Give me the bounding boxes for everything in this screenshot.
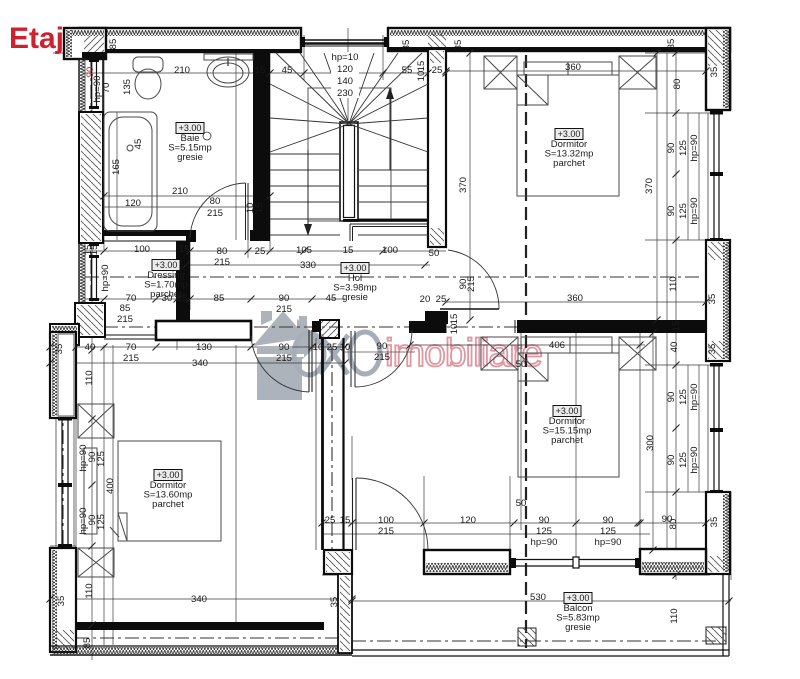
svg-text:210: 210: [172, 186, 188, 197]
svg-text:35: 35: [707, 344, 718, 355]
svg-text:hp=90: hp=90: [689, 135, 700, 162]
svg-text:125: 125: [536, 526, 552, 537]
svg-text:370: 370: [458, 177, 469, 193]
svg-text:40: 40: [669, 342, 680, 353]
svg-text:90: 90: [603, 515, 614, 526]
svg-text:10: 10: [449, 324, 460, 335]
svg-text:45: 45: [282, 65, 293, 76]
svg-text:25: 25: [327, 342, 338, 353]
svg-text:125: 125: [678, 140, 689, 156]
svg-text:hp=90: hp=90: [595, 537, 622, 548]
svg-text:+3.00: +3.00: [558, 129, 581, 139]
svg-text:50: 50: [429, 248, 440, 259]
svg-text:125: 125: [96, 451, 107, 467]
svg-text:+3.00: +3.00: [344, 263, 367, 273]
svg-text:70: 70: [101, 83, 112, 94]
svg-text:Etaj: Etaj: [9, 22, 64, 55]
svg-text:90: 90: [377, 341, 388, 352]
svg-text:hp=90: hp=90: [689, 384, 700, 411]
svg-text:35: 35: [709, 517, 720, 528]
svg-text:120: 120: [337, 64, 353, 75]
svg-text:15: 15: [254, 203, 265, 214]
svg-text:300: 300: [645, 435, 656, 451]
svg-text:90: 90: [279, 293, 290, 304]
svg-text:90: 90: [666, 206, 677, 217]
svg-text:10: 10: [313, 342, 324, 353]
svg-text:35: 35: [329, 597, 340, 608]
svg-text:90: 90: [666, 392, 677, 403]
svg-text:85: 85: [214, 293, 225, 304]
svg-text:35: 35: [709, 67, 720, 78]
svg-text:+3.00: +3.00: [157, 470, 180, 480]
svg-text:15: 15: [340, 515, 351, 526]
svg-text:80: 80: [672, 79, 683, 90]
svg-text:110: 110: [84, 370, 95, 385]
svg-text:110: 110: [669, 608, 680, 623]
svg-text:215: 215: [378, 526, 394, 537]
svg-text:125: 125: [96, 514, 107, 530]
svg-text:25: 25: [432, 65, 443, 76]
svg-text:45: 45: [133, 139, 144, 150]
svg-text:+3.00: +3.00: [155, 260, 178, 270]
svg-text:215: 215: [276, 304, 292, 315]
svg-text:215: 215: [374, 352, 390, 363]
svg-text:360: 360: [567, 293, 583, 304]
svg-text:340: 340: [191, 594, 207, 605]
svg-text:215: 215: [207, 208, 223, 219]
svg-text:120: 120: [125, 198, 141, 209]
svg-text:20: 20: [420, 294, 431, 305]
svg-text:360: 360: [565, 62, 581, 73]
svg-text:hp=10: hp=10: [332, 52, 359, 63]
svg-text:110: 110: [84, 583, 95, 598]
svg-text:406: 406: [549, 340, 565, 351]
svg-text:530: 530: [530, 592, 546, 603]
svg-text:35: 35: [56, 596, 67, 607]
svg-text:15: 15: [416, 61, 427, 72]
svg-text:125: 125: [600, 526, 616, 537]
svg-text:30: 30: [162, 293, 173, 304]
svg-text:135: 135: [122, 79, 133, 95]
svg-text:80: 80: [217, 246, 228, 257]
svg-text:80: 80: [210, 196, 221, 207]
svg-text:90: 90: [666, 143, 677, 154]
svg-text:15: 15: [89, 245, 100, 256]
svg-text:15: 15: [671, 321, 682, 332]
svg-text:120: 120: [460, 515, 476, 526]
svg-text:215: 215: [123, 353, 139, 364]
svg-text:gresie: gresie: [565, 622, 591, 633]
svg-text:90: 90: [666, 455, 677, 466]
svg-text:25: 25: [255, 246, 266, 257]
svg-text:35: 35: [666, 39, 677, 50]
svg-text:35: 35: [453, 40, 464, 51]
svg-text:+3.00: +3.00: [179, 123, 202, 133]
svg-text:parchet: parchet: [553, 158, 585, 169]
svg-text:400: 400: [105, 478, 116, 494]
svg-text:gresie: gresie: [342, 292, 368, 303]
svg-text:45: 45: [326, 293, 337, 304]
svg-text:100: 100: [134, 244, 150, 255]
svg-text:230: 230: [337, 88, 353, 99]
svg-text:125: 125: [678, 452, 689, 468]
svg-text:hp=90: hp=90: [531, 537, 558, 548]
svg-text:110: 110: [668, 276, 679, 291]
svg-text:+3.00: +3.00: [567, 593, 590, 603]
svg-text:15: 15: [449, 314, 460, 325]
svg-text:370: 370: [644, 178, 655, 194]
svg-text:140: 140: [337, 76, 353, 87]
svg-text:70: 70: [126, 342, 137, 353]
svg-text:hp=90: hp=90: [689, 447, 700, 474]
svg-text:100: 100: [378, 515, 394, 526]
svg-text:35: 35: [54, 344, 65, 355]
svg-text:+3.00: +3.00: [556, 406, 579, 416]
svg-text:90: 90: [279, 342, 290, 353]
svg-text:85: 85: [108, 39, 119, 50]
svg-text:210: 210: [174, 65, 190, 76]
svg-text:80: 80: [668, 519, 679, 530]
svg-text:85: 85: [120, 303, 131, 314]
svg-text:215: 215: [276, 353, 292, 364]
svg-text:215: 215: [214, 257, 230, 268]
svg-text:90: 90: [539, 515, 550, 526]
svg-text:50: 50: [516, 359, 527, 370]
svg-text:100: 100: [382, 245, 398, 256]
svg-text:parchet: parchet: [152, 499, 184, 510]
svg-text:50: 50: [516, 498, 527, 509]
svg-text:15: 15: [343, 245, 354, 256]
svg-text:130: 130: [196, 342, 212, 353]
svg-text:125: 125: [678, 389, 689, 405]
svg-text:165: 165: [111, 159, 122, 175]
svg-text:hp=90: hp=90: [100, 265, 111, 292]
svg-text:35: 35: [401, 40, 412, 51]
svg-text:15: 15: [255, 65, 266, 76]
svg-text:parchet: parchet: [551, 435, 583, 446]
svg-text:85: 85: [82, 638, 93, 649]
svg-text:hp=90: hp=90: [689, 198, 700, 225]
svg-text:340: 340: [192, 358, 208, 369]
svg-text:25: 25: [325, 515, 336, 526]
svg-text:gresie: gresie: [177, 152, 203, 163]
svg-text:330: 330: [300, 260, 316, 271]
svg-text:215: 215: [117, 314, 133, 325]
svg-text:215: 215: [466, 276, 477, 292]
svg-text:55: 55: [402, 65, 413, 76]
svg-text:125: 125: [678, 203, 689, 219]
